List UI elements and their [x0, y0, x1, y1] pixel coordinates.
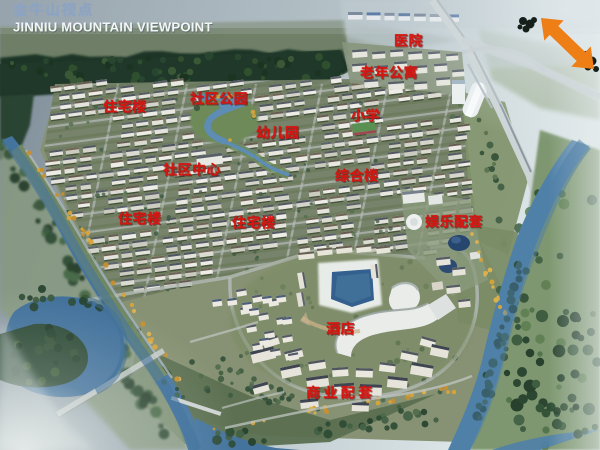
svg-text:JINNIU MOUNTAIN VIEWPOINT: JINNIU MOUNTAIN VIEWPOINT	[13, 20, 213, 35]
